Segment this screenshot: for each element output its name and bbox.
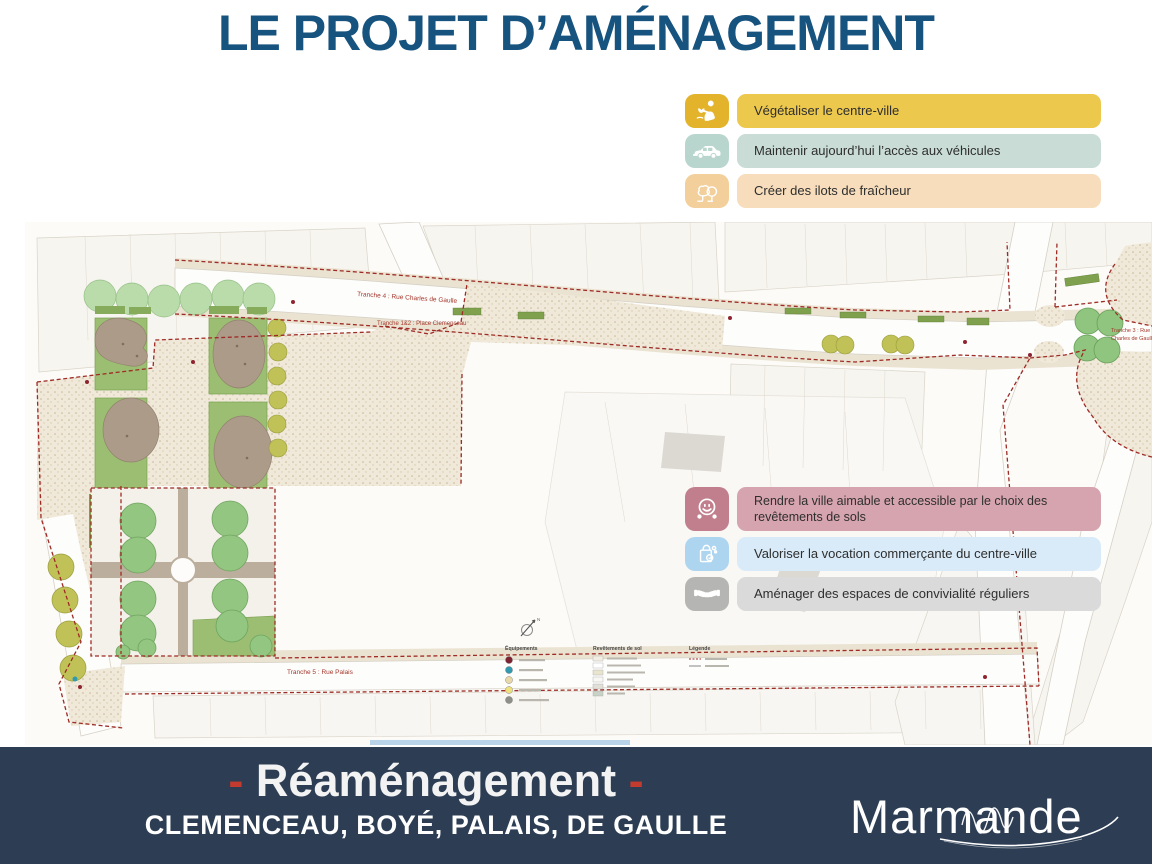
svg-text:Tranche 1&2 : Place Clemenceau: Tranche 1&2 : Place Clemenceau bbox=[377, 321, 467, 327]
handshake-icon bbox=[685, 577, 729, 611]
svg-text:Équipements: Équipements bbox=[505, 644, 538, 652]
svg-text:Légende: Légende bbox=[689, 646, 710, 652]
banner-label: Rendre la ville aimable et accessible pa… bbox=[754, 493, 1091, 526]
svg-text:Tranche 5 : Rue Palais: Tranche 5 : Rue Palais bbox=[287, 669, 354, 676]
banner-acces-vehicules: Maintenir aujourd’hui l’accès aux véhicu… bbox=[737, 134, 1101, 168]
site-plan-map: Tranche 4 : Rue Charles de Gaulle Tranch… bbox=[25, 222, 1152, 745]
banner-label: Végétaliser le centre-ville bbox=[754, 103, 899, 120]
callout-convivialite: Aménager des espaces de convivialité rég… bbox=[685, 577, 1101, 611]
planting-person-icon bbox=[685, 94, 729, 128]
footer-line1: - Réaménagement - bbox=[0, 755, 872, 807]
banner-ilots-fraicheur: Créer des ilots de fraîcheur bbox=[737, 174, 1101, 208]
banner-label: Créer des ilots de fraîcheur bbox=[754, 183, 911, 200]
banner-vegetaliser: Végétaliser le centre-ville bbox=[737, 94, 1101, 128]
marmande-logo: Marmande bbox=[850, 789, 1130, 855]
callout-vegetaliser: Végétaliser le centre-ville bbox=[685, 94, 1101, 128]
svg-text:Charles de Gaulle: Charles de Gaulle bbox=[1111, 336, 1152, 342]
callout-commerce: Valoriser la vocation commerçante du cen… bbox=[685, 537, 1101, 571]
footer-line1-text: Réaménagement bbox=[256, 755, 616, 806]
banner-convivialite: Aménager des espaces de convivialité rég… bbox=[737, 577, 1101, 611]
banner-label: Valoriser la vocation commerçante du cen… bbox=[754, 546, 1037, 563]
footer-band: - Réaménagement - CLEMENCEAU, BOYÉ, PALA… bbox=[0, 747, 1152, 864]
formal-garden bbox=[91, 488, 275, 659]
svg-text:Revêtements de sol: Revêtements de sol bbox=[593, 646, 642, 652]
callout-ilots-fraicheur: Créer des ilots de fraîcheur bbox=[685, 174, 1101, 208]
banner-label: Maintenir aujourd’hui l’accès aux véhicu… bbox=[754, 143, 1000, 160]
car-icon bbox=[685, 134, 729, 168]
page-title: LE PROJET D’AMÉNAGEMENT bbox=[0, 4, 1152, 62]
trees-icon bbox=[685, 174, 729, 208]
footer-project-title: - Réaménagement - CLEMENCEAU, BOYÉ, PALA… bbox=[0, 755, 872, 841]
objectives-mid-callouts: Rendre la ville aimable et accessible pa… bbox=[685, 487, 1101, 617]
footer-line2: CLEMENCEAU, BOYÉ, PALAIS, DE GAULLE bbox=[0, 810, 872, 841]
banner-commerce: Valoriser la vocation commerçante du cen… bbox=[737, 537, 1101, 571]
banner-revetements: Rendre la ville aimable et accessible pa… bbox=[737, 487, 1101, 531]
callout-acces-vehicules: Maintenir aujourd’hui l’accès aux véhicu… bbox=[685, 134, 1101, 168]
svg-text:N: N bbox=[537, 617, 540, 622]
shopping-bag-icon bbox=[685, 537, 729, 571]
callout-revetements: Rendre la ville aimable et accessible pa… bbox=[685, 487, 1101, 531]
slide: LE PROJET D’AMÉNAGEMENT bbox=[0, 0, 1152, 864]
banner-label: Aménager des espaces de convivialité rég… bbox=[754, 586, 1029, 603]
logo-scribble-icon bbox=[850, 789, 1130, 855]
red-dash-left: - bbox=[228, 755, 243, 806]
objectives-top-callouts: Végétaliser le centre-ville Maintenir au… bbox=[685, 94, 1101, 214]
red-dash-right: - bbox=[629, 755, 644, 806]
smiley-icon bbox=[685, 487, 729, 531]
svg-text:Tranche 3 : Rue: Tranche 3 : Rue bbox=[1111, 328, 1150, 334]
bottom-sliver bbox=[370, 740, 630, 745]
